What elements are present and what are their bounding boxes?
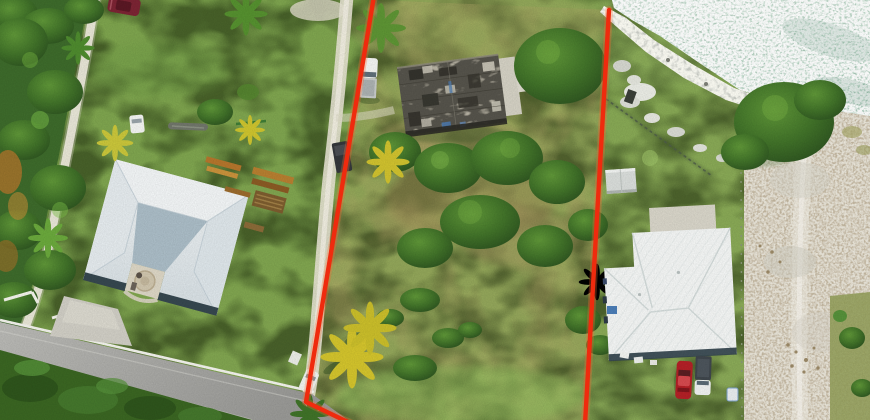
aerial-photo-canvas <box>0 0 870 420</box>
aerial-photo <box>0 0 870 420</box>
grain-overlay <box>0 0 870 420</box>
